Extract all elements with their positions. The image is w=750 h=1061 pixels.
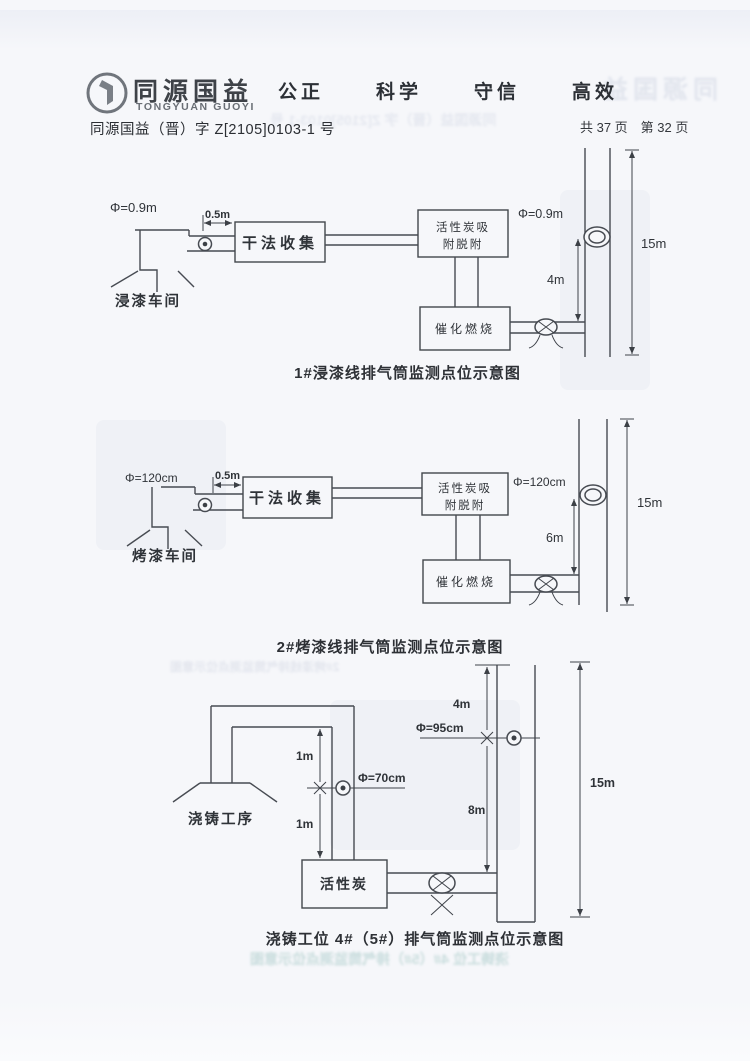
slogan-row: 公正 科学 守信 高效	[278, 77, 618, 104]
catalytic-combustion-label: 催化燃烧	[435, 321, 495, 336]
monitoring-point-icon	[336, 781, 350, 795]
dimension-stack-bottom: 8m	[468, 746, 487, 872]
dry-collection-label: 干法收集	[242, 234, 318, 252]
slogan-item: 守信	[474, 77, 520, 104]
workshop-label: 浸漆车间	[115, 292, 181, 310]
company-name-en: TONGYUAN GUOYI	[136, 101, 255, 113]
dimension-total-height: 15m	[620, 419, 662, 605]
total-height-label: 15m	[590, 776, 615, 790]
phi-inlet-label: Φ=120cm	[125, 471, 178, 485]
monitoring-point-icon	[199, 238, 212, 251]
dimension-total-height: 15m	[570, 662, 615, 917]
document-number: 同源国益（晋）字 Z[2105]0103-1 号	[90, 118, 335, 139]
phi-inlet-label: Φ=0.9m	[110, 200, 157, 215]
workshop-label: 烤漆车间	[132, 547, 198, 565]
dimension-port-height: 4m	[547, 239, 578, 321]
diagram-2-caption: 2#烤漆线排气筒监测点位示意图	[95, 636, 685, 657]
dimension-port-height: 6m	[546, 499, 574, 574]
slogan-item: 科学	[376, 77, 422, 104]
dimension-duct-point: 1m 1m	[296, 729, 326, 858]
dimension-offset: 0.5m	[213, 470, 241, 493]
port-height-label: 6m	[546, 531, 563, 545]
workshop-hood	[173, 783, 277, 802]
exhaust-stack	[585, 148, 610, 357]
workshop-hood	[111, 230, 235, 292]
dimension-offset: 0.5m	[203, 209, 232, 231]
activated-carbon-label: 活性炭	[320, 876, 368, 892]
carbon-adsorption-label-2: 附脱附	[445, 498, 486, 512]
total-height-label: 15m	[637, 495, 662, 510]
stack-bottom-label: 8m	[468, 803, 485, 817]
phi-duct-label: Φ=70cm	[358, 771, 406, 785]
fan-valve-icon	[529, 576, 563, 605]
offset-label: 0.5m	[205, 209, 230, 221]
dry-collection-label: 干法收集	[249, 489, 325, 507]
total-height-label: 15m	[641, 236, 666, 251]
scan-bottom-band	[0, 998, 750, 1061]
fan-valve-icon	[429, 873, 455, 915]
scan-top-band	[0, 10, 750, 50]
monitoring-point-icon	[507, 731, 521, 745]
diagram-3-svg: 浇铸工序 1m 1m Φ=70cm 活性炭 Φ=95cm	[150, 652, 630, 937]
sampling-port-icon	[584, 227, 610, 247]
diagram-2-svg: Φ=120cm 烤漆车间 0.5m 干法收集 活性炭吸 附脱附 催化燃烧	[85, 412, 680, 642]
company-logo-icon	[84, 70, 130, 121]
stack-top-label: 4m	[453, 697, 470, 711]
workshop-hood	[127, 487, 243, 549]
phi-stack-label: Φ=120cm	[513, 475, 566, 489]
slogan-item: 高效	[572, 77, 618, 104]
diagram-1-caption: 1#浸漆线排气筒监测点位示意图	[110, 362, 705, 383]
duct-down-label: 1m	[296, 817, 313, 831]
dimension-total-height: 15m	[625, 150, 666, 355]
sampling-port-icon	[580, 485, 606, 505]
page-indicator: 共 37 页 第 32 页	[580, 117, 688, 136]
exhaust-stack	[579, 419, 607, 612]
exhaust-stack	[475, 665, 535, 922]
offset-label: 0.5m	[215, 470, 240, 482]
monitoring-point-icon	[199, 499, 212, 512]
carbon-adsorption-label-2: 附脱附	[443, 237, 484, 251]
port-height-label: 4m	[547, 273, 564, 287]
phi-stack-label: Φ=95cm	[416, 721, 464, 735]
carbon-adsorption-label-1: 活性炭吸	[436, 220, 490, 234]
slogan-item: 公正	[278, 77, 324, 104]
carbon-adsorption-label-1: 活性炭吸	[438, 481, 492, 495]
diagram-1-svg: Φ=0.9m 浸漆车间 0.5m 干法收集 活性炭吸 附脱附 催化燃烧	[85, 138, 680, 373]
workshop-label: 浇铸工序	[188, 810, 254, 828]
phi-stack-label: Φ=0.9m	[518, 207, 563, 221]
duct-up-label: 1m	[296, 749, 313, 763]
catalytic-combustion-label: 催化燃烧	[436, 574, 496, 589]
diagram-3-caption: 浇铸工位 4#（5#）排气筒监测点位示意图	[135, 928, 695, 949]
ghost-caption-bleed: 浇铸工位 4#（5#）排气筒监测点位示意图	[250, 949, 509, 969]
